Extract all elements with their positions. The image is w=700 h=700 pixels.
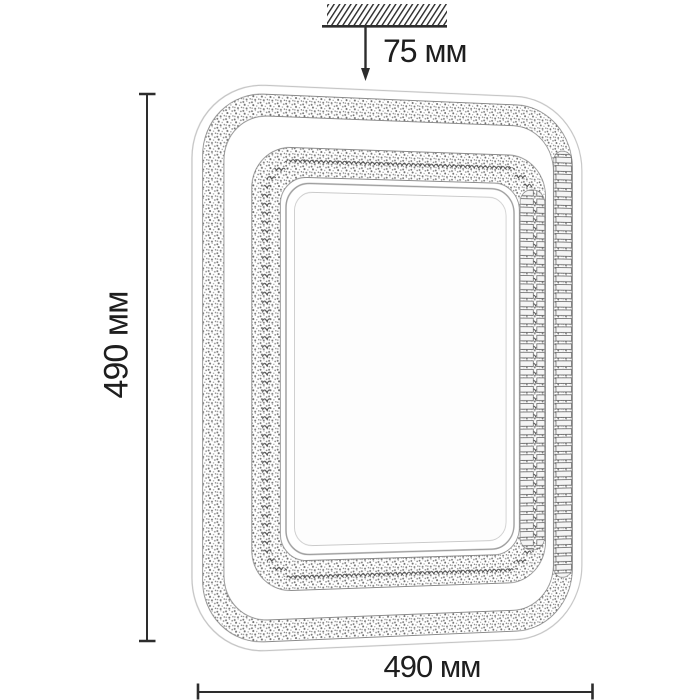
bottom-dimension-label: 490 мм xyxy=(384,649,481,685)
arrow-down-icon xyxy=(361,27,370,81)
fixture-center-panel-inner-line xyxy=(294,192,506,546)
fixture-side-crystal-band xyxy=(554,151,572,578)
dimension-line-vertical xyxy=(139,94,156,641)
inner-band-side-crystals xyxy=(520,190,544,551)
top-dimension-label: 75 мм xyxy=(383,33,466,70)
ceiling-hatch-icon xyxy=(322,4,447,26)
light-fixture xyxy=(190,80,584,656)
left-dimension-label: 490 мм xyxy=(98,292,137,399)
light-fixture-drawing xyxy=(190,80,584,656)
dimension-diagram: 75 мм 490 мм 490 мм xyxy=(0,0,700,700)
dimension-line-horizontal xyxy=(198,684,593,700)
